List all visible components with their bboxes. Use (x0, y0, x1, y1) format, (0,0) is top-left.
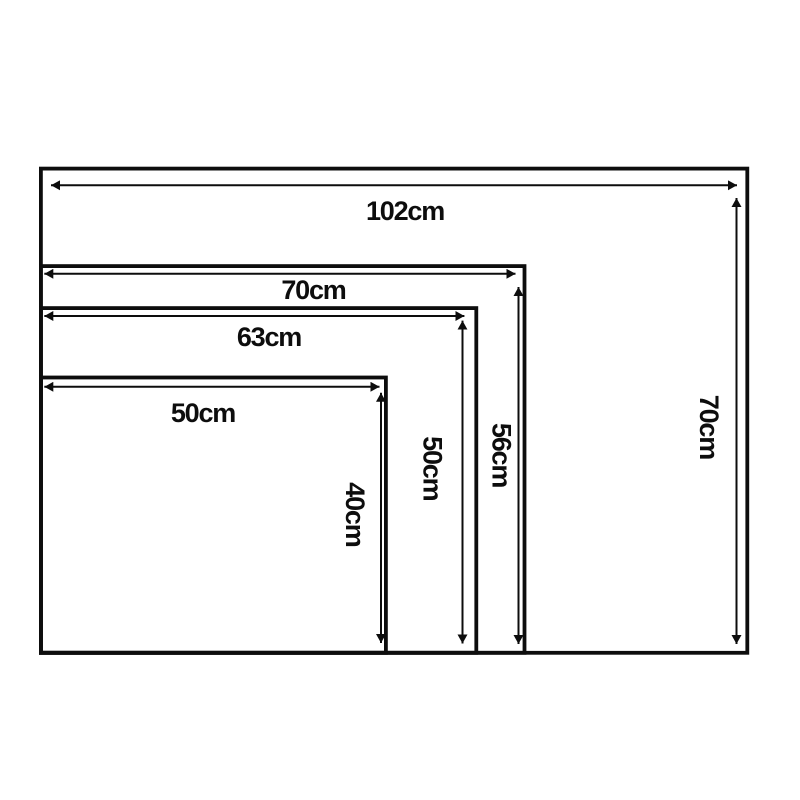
svg-text:102cm: 102cm (366, 196, 444, 226)
svg-text:56cm: 56cm (487, 423, 517, 487)
svg-text:70cm: 70cm (281, 275, 345, 305)
svg-text:50cm: 50cm (171, 398, 235, 428)
svg-text:70cm: 70cm (694, 395, 724, 459)
svg-text:50cm: 50cm (418, 436, 448, 500)
svg-text:40cm: 40cm (340, 482, 370, 546)
svg-text:63cm: 63cm (237, 322, 301, 352)
